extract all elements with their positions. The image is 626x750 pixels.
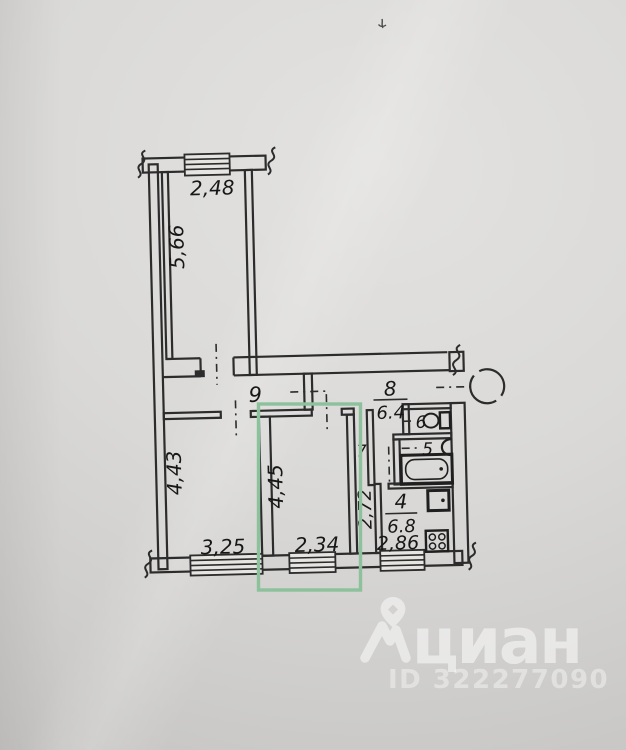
watermark: циан ID 322277090 xyxy=(365,597,609,695)
interior-walls xyxy=(158,165,454,558)
stray-mark xyxy=(379,19,387,28)
floorplan-svg: 2,48 5,66 9 8 6.4 6 5 7 4,43 4,45 2,72 4… xyxy=(0,0,626,750)
windows xyxy=(180,149,424,576)
wall-break-marks xyxy=(134,143,476,578)
exterior-walls xyxy=(141,151,469,573)
label-kitchen-width: 2,86 xyxy=(377,532,420,555)
break-mark-top-right xyxy=(267,147,276,174)
label-mid-room-width: 2,34 xyxy=(294,532,339,557)
floorplan-photo: 2,48 5,66 9 8 6.4 6 5 7 4,43 4,45 2,72 4… xyxy=(0,0,626,750)
closet-right-wall xyxy=(367,410,375,485)
floorplan-drawing: 2,48 5,66 9 8 6.4 6 5 7 4,43 4,45 2,72 4… xyxy=(134,142,510,578)
door-axis-hall xyxy=(290,391,328,392)
stove-icon xyxy=(426,530,449,552)
bath-top-wall xyxy=(393,433,451,439)
toilet-icon xyxy=(423,412,450,429)
label-kitchen-num: 4 xyxy=(394,489,407,513)
kitchen-sink-icon xyxy=(428,490,449,511)
right-exterior-wall-upper xyxy=(449,352,463,371)
cian-logo-icon xyxy=(365,597,406,658)
entry-circle-icon xyxy=(468,367,506,405)
door-axis-bath xyxy=(389,447,390,483)
label-left-room-height: 4,43 xyxy=(162,450,187,495)
kitchen-fraction-bar xyxy=(385,513,417,514)
door-axis-top-room xyxy=(216,344,217,385)
top-room-right-wall xyxy=(245,170,257,375)
label-hall-num: 8 xyxy=(384,376,397,400)
door-axis-left-room xyxy=(235,400,236,436)
bath-left-wall xyxy=(393,439,400,484)
wc-top-wall xyxy=(403,403,451,409)
label-wc-num: 6 xyxy=(415,413,426,433)
label-left-room-width: 3,25 xyxy=(200,534,245,559)
label-closet-length: 2,72 xyxy=(355,489,377,530)
label-hall-area: 6.4 xyxy=(376,402,405,424)
hall-fraction-bar xyxy=(373,399,407,400)
mid-room-right-wall xyxy=(347,414,357,553)
door-threshold xyxy=(195,370,205,377)
plan-labels: 2,48 5,66 9 8 6.4 6 5 7 4,43 4,45 2,72 4… xyxy=(155,171,436,561)
door-axis-mid-room xyxy=(326,394,327,434)
label-top-room-width: 2,48 xyxy=(190,175,235,200)
label-top-room-height: 5,66 xyxy=(164,224,189,269)
watermark-id: ID 322277090 xyxy=(388,665,609,695)
label-mid-room-height: 4,45 xyxy=(263,464,288,509)
rooms-top-wall-a xyxy=(164,412,221,419)
label-bath-num: 5 xyxy=(422,440,433,460)
window-icon-top xyxy=(184,153,229,175)
